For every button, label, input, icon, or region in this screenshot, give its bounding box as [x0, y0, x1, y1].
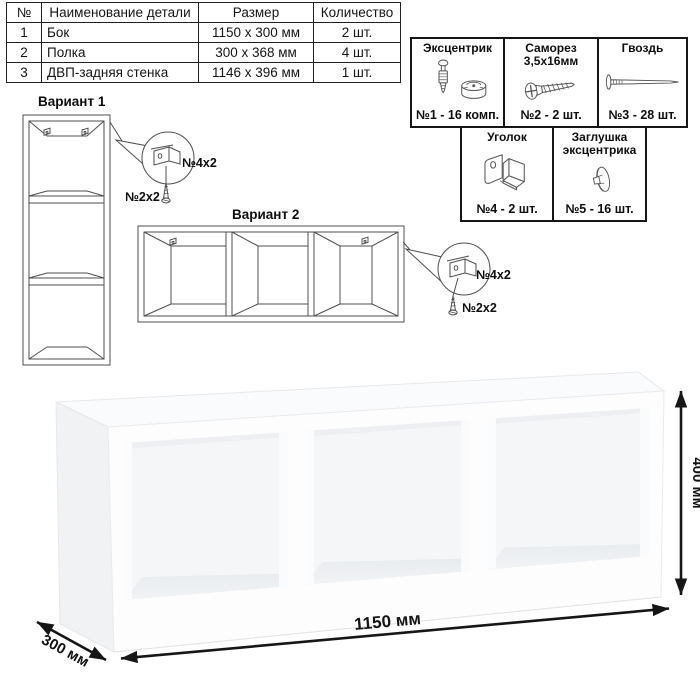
hardware-title: Заглушка эксцентрика: [556, 131, 643, 158]
assembly-instruction-sheet: { "parts_table": { "headers": ["№", "Наи…: [0, 0, 700, 690]
hardware-item-nail: Гвоздь №3 - 28 шт.: [597, 37, 688, 128]
shelf-compartment: [488, 408, 649, 570]
col-header-name: Наименование детали: [42, 3, 199, 23]
hardware-title: Саморез 3,5х16мм: [507, 42, 595, 69]
part-quantity: 1 шт.: [314, 63, 401, 83]
screw-icon: [449, 296, 457, 315]
hardware-title: Уголок: [487, 131, 527, 144]
hardware-label: №2 - 2 шт.: [520, 108, 581, 122]
table-row-back-panel: 3 ДВП-задняя стенка 1146 x 396 мм 1 шт.: [7, 63, 401, 83]
part-size: 1150 x 300 мм: [199, 23, 314, 43]
variant2-mounted-brackets: [170, 237, 368, 245]
hardware-label: №4 - 2 шт.: [476, 202, 537, 216]
height-dimension-label: 400 мм: [689, 457, 700, 508]
nail-icon: [602, 55, 684, 108]
parts-table: № Наименование детали Размер Количество …: [6, 2, 401, 83]
screw-count-label: №2х2: [462, 301, 497, 315]
part-name: Полка: [42, 43, 199, 63]
part-quantity: 4 шт.: [314, 43, 401, 63]
part-quantity: 2 шт.: [314, 23, 401, 43]
variant2-title: Вариант 2: [232, 207, 299, 222]
shelf-compartment: [306, 420, 470, 585]
hardware-item-screw: Саморез 3,5х16мм №2 - 2 шт.: [503, 37, 599, 128]
parts-table-header-row: № Наименование детали Размер Количество: [7, 3, 401, 23]
hardware-item-corner-bracket: Уголок №4 - 2 шт.: [460, 126, 554, 222]
part-name: Бок: [42, 23, 199, 43]
variant1-callout: №4х2 №2х2: [110, 122, 217, 204]
variant1-shelf-outline: [23, 115, 110, 365]
cam-cover-icon: [580, 158, 620, 202]
hardware-label: №3 - 28 шт.: [608, 108, 676, 122]
hardware-item-cam-lock: Эксцентрик №1 - 16 комп.: [410, 37, 505, 128]
bracket-count-label: №4х2: [182, 156, 217, 170]
variant2-drawing: №4х2 №2х2: [135, 222, 515, 328]
variant2-callout: №4х2 №2х2: [403, 242, 511, 315]
hardware-label: №1 - 16 комп.: [416, 108, 499, 122]
hardware-item-cam-cover: Заглушка эксцентрика №5 - 16 шт.: [552, 126, 647, 222]
cam-lock-icon: [422, 55, 494, 108]
part-size: 1146 x 396 мм: [199, 63, 314, 83]
table-row-shelf: 2 Полка 300 x 368 мм 4 шт.: [7, 43, 401, 63]
shelf-3d-render: 1150 мм 400 мм 300 мм: [0, 365, 700, 690]
variant1-title: Вариант 1: [38, 94, 105, 109]
bracket-count-label: №4х2: [476, 268, 511, 282]
col-header-quantity: Количество: [314, 3, 401, 23]
shelf-body: [56, 372, 664, 652]
hardware-title: Гвоздь: [622, 42, 664, 55]
part-number: 3: [7, 63, 42, 83]
hardware-title: Эксцентрик: [423, 42, 492, 55]
part-number: 1: [7, 23, 42, 43]
part-name: ДВП-задняя стенка: [42, 63, 199, 83]
hardware-box: Эксцентрик №1 - 16 комп.: [410, 37, 688, 222]
col-header-number: №: [7, 3, 42, 23]
hardware-label: №5 - 16 шт.: [565, 202, 633, 216]
screw-icon: [518, 69, 584, 108]
screw-icon: [162, 183, 170, 203]
corner-bracket-icon: [477, 144, 537, 202]
variant1-mounted-brackets: [44, 128, 88, 135]
screw-count-label: №2х2: [125, 190, 160, 204]
part-size: 300 x 368 мм: [199, 43, 314, 63]
height-dimension: 400 мм: [681, 391, 700, 595]
shelf-compartment: [124, 432, 288, 600]
part-number: 2: [7, 43, 42, 63]
col-header-size: Размер: [199, 3, 314, 23]
table-row-side-panel: 1 Бок 1150 x 300 мм 2 шт.: [7, 23, 401, 43]
